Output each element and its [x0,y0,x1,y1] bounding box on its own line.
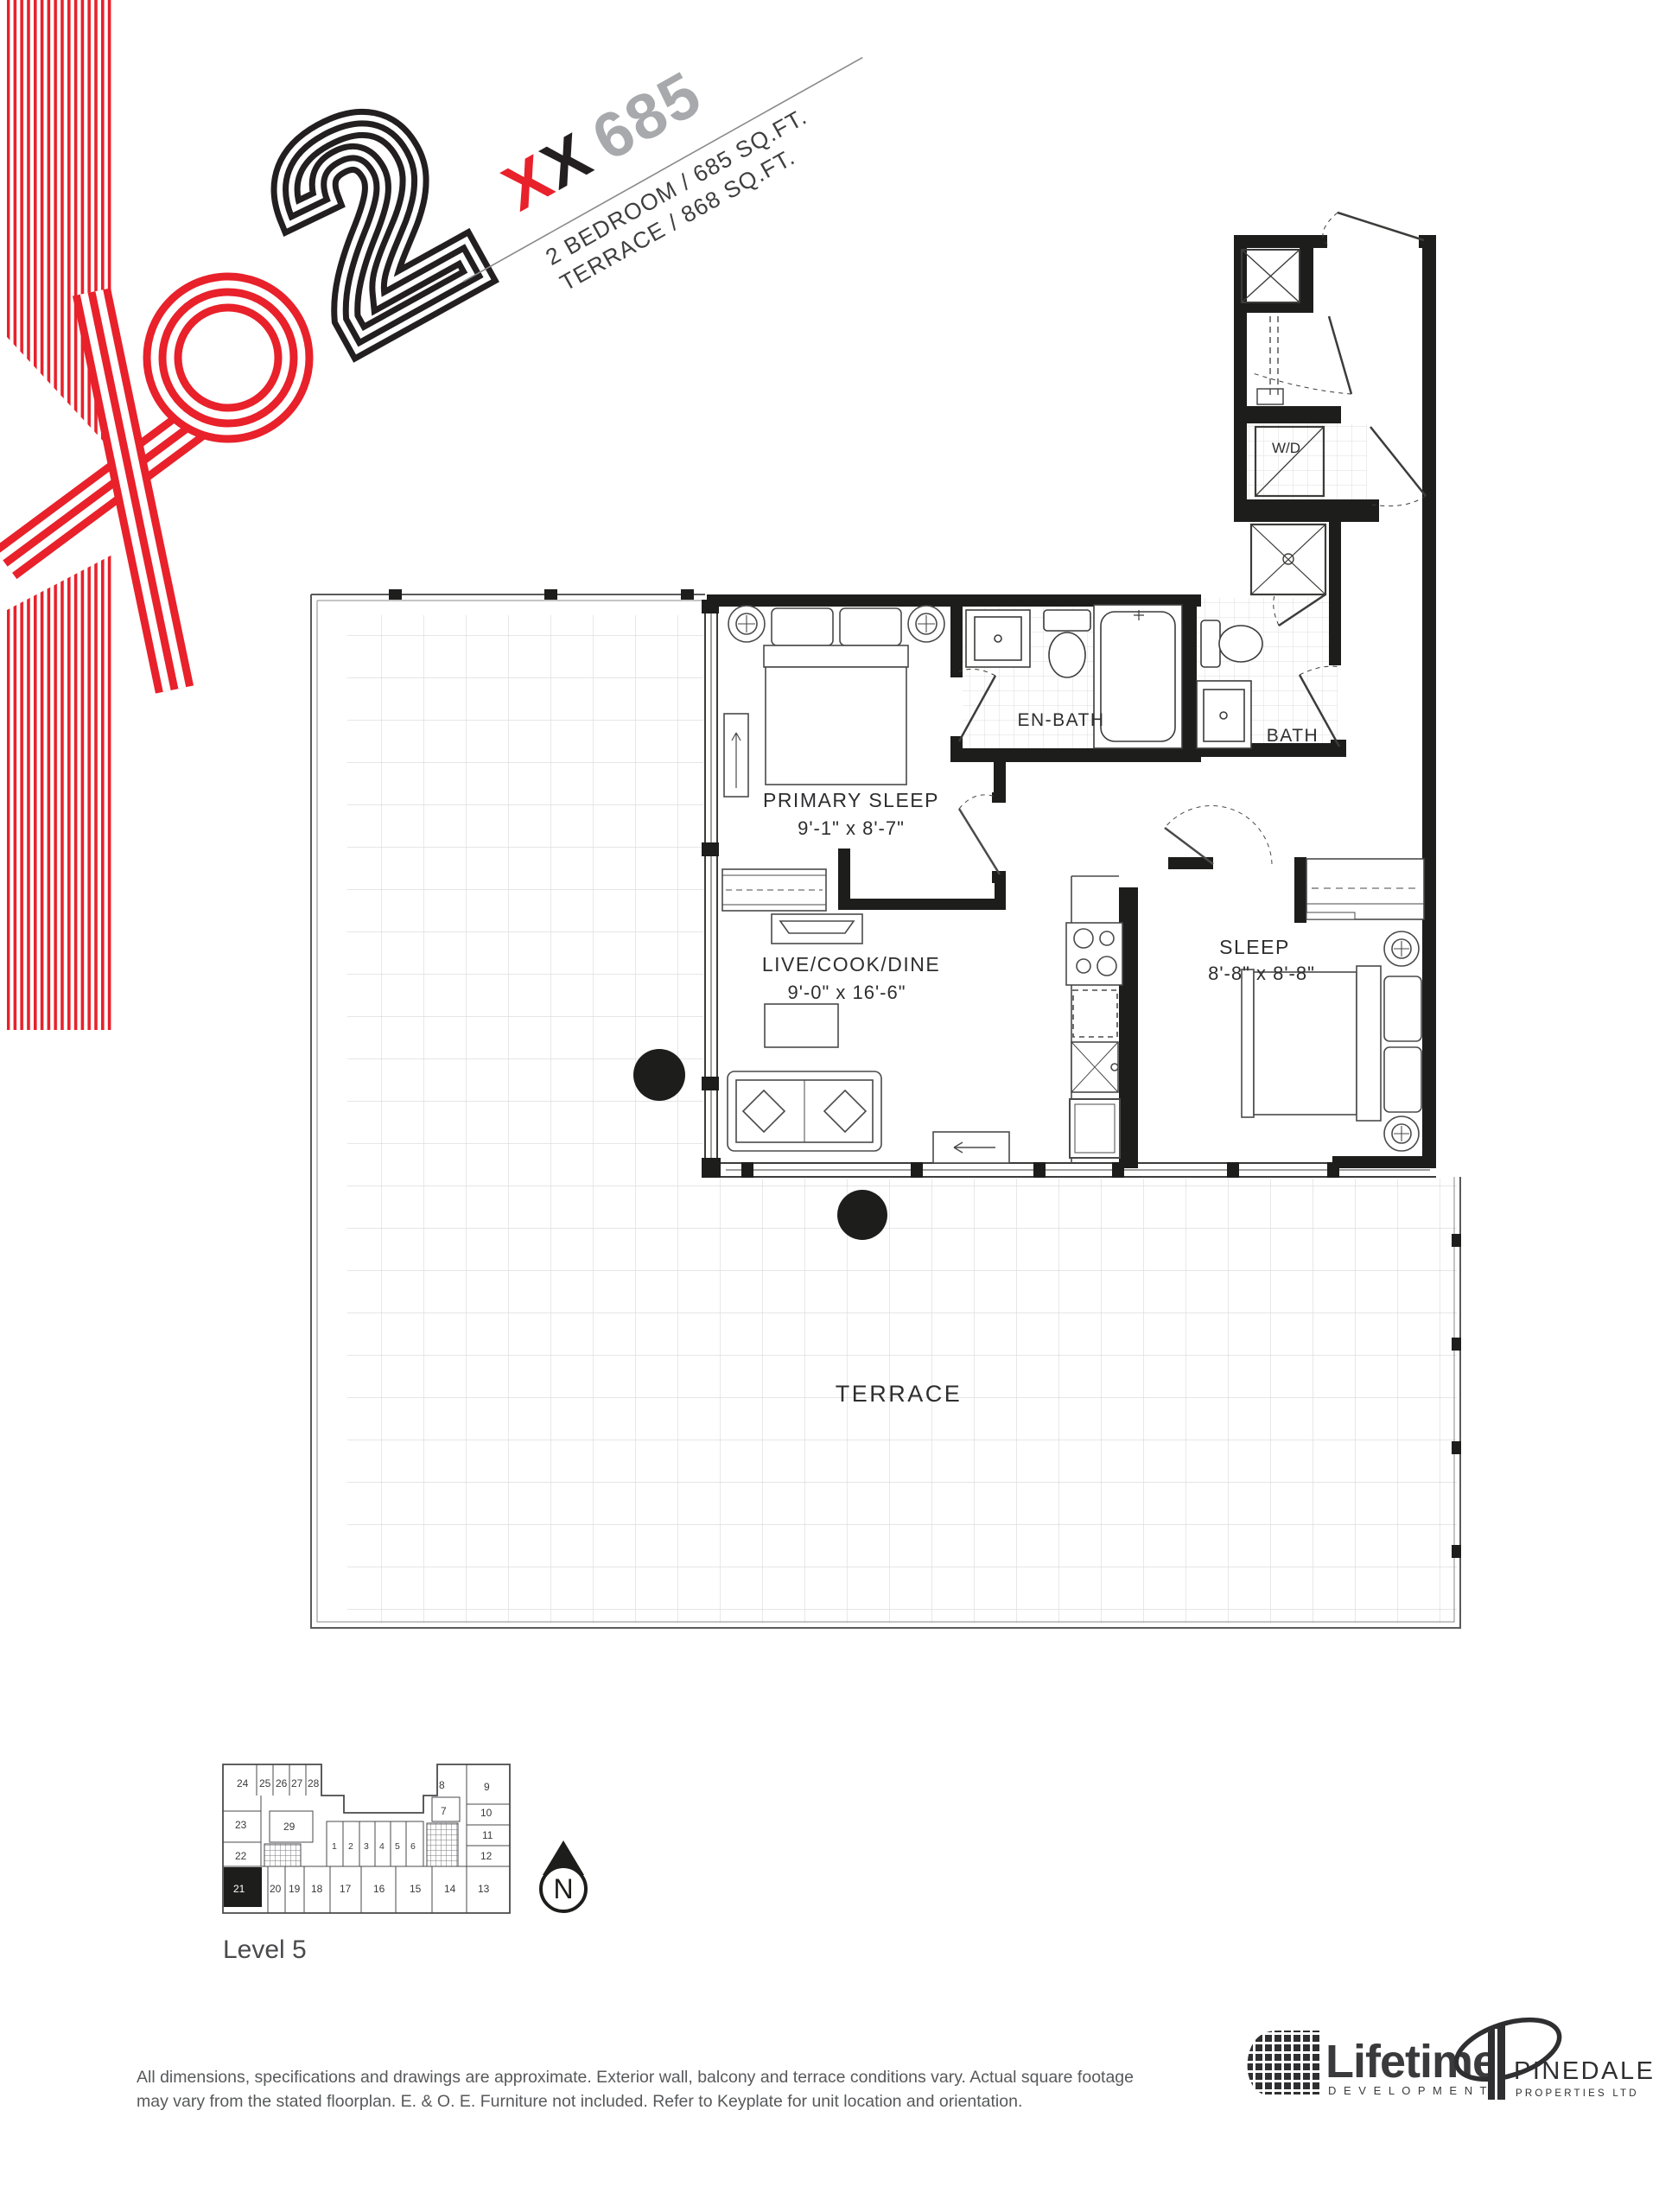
coffee-table [765,1004,838,1047]
pinedale-tower-slit [1495,2029,1497,2100]
floor-plan: TERRACE [311,213,1461,1628]
structural-column [837,1190,887,1240]
kitchen [1066,876,1122,1163]
keyplate-unit-12: 12 [480,1850,493,1862]
enbath-tub [1094,605,1182,748]
floorplan-page: 2 2 2 XX685 2 BEDROOM / 685 SQ.FT. TERRA… [0,0,1659,2212]
fridge [1070,1099,1120,1158]
disclaimer-line1: All dimensions, specifications and drawi… [137,2068,1134,2087]
primary-door-arc [959,795,995,809]
keyplate-unit-3: 3 [364,1841,369,1852]
keyplate-unit-7: 7 [441,1805,447,1817]
keyplate-unit-1: 1 [332,1841,337,1852]
enbath-vanity [966,610,1030,667]
sofa [728,1071,881,1151]
keyplate-unit-19: 19 [289,1883,301,1895]
keyplate-level-label: Level 5 [223,1935,307,1964]
pinedale-sub: PROPERTIES LTD [1516,2088,1639,2099]
keyplate-unit-2: 2 [348,1841,353,1852]
keyplate: 1 2 3 4 5 6 7 8 9 10 11 12 13 14 15 16 1… [223,1764,586,1964]
primary-nightstand [728,606,765,642]
room-dims-primary: 9'-1" x 8'-7" [798,817,905,839]
room-label-primary: PRIMARY SLEEP [763,789,939,811]
terrace-paving-left [347,615,703,1623]
keyplate-unit-29: 29 [283,1821,296,1833]
keyplate-unit-8: 8 [439,1779,445,1791]
kitchen-sink [1071,1042,1118,1092]
structural-column [633,1049,685,1101]
live-cook-dine: LIVE/COOK/DINE 9'-0" x 16'-6" [728,876,1122,1163]
keyplate-unit-18: 18 [311,1883,323,1895]
disclaimer-line2: may vary from the stated floorplan. E. &… [137,2092,1022,2111]
keyplate-unit-6: 6 [410,1841,416,1852]
north-arrow-icon: N [541,1840,586,1911]
tv-console [772,914,862,944]
keyplate-unit-9: 9 [484,1781,490,1793]
keyplate-unit-11: 11 [482,1829,493,1841]
keyplate-unit-14: 14 [444,1883,456,1895]
keyplate-unit-4: 4 [379,1841,385,1852]
lifetime-sub: D E V E L O P M E N T S [1328,2084,1503,2097]
keyplate-unit-20: 20 [270,1883,282,1895]
keyplate-unit-25: 25 [259,1777,271,1789]
wd-floor [1247,423,1367,499]
keyplate-unit-23: 23 [235,1819,247,1831]
primary-dresser [724,714,748,797]
disclaimer: All dimensions, specifications and drawi… [137,2068,1134,2111]
primary-closet [722,869,826,911]
sleep-closet [1306,859,1424,919]
keyplate-unit-22: 22 [235,1850,247,1862]
entry-console [933,1132,1009,1163]
keyplate-unit-17: 17 [340,1883,352,1895]
room-dims-sleep: 8'-8" x 8'-8" [1208,963,1315,984]
entry-door-leaf [1338,213,1424,240]
terrace-paving-bottom [703,1179,1457,1623]
room-label-terrace: TERRACE [836,1381,963,1407]
floorplan-canvas: 2 2 2 XX685 2 BEDROOM / 685 SQ.FT. TERRA… [0,0,1659,2212]
keyplate-unit-28: 28 [308,1777,320,1789]
keyplate-unit-5: 5 [395,1841,400,1852]
logo-letter-o [162,292,294,423]
pinedale-name: PINEDALE [1514,2057,1655,2085]
sleep-door-arc [1165,805,1272,864]
keyplate-unit-24: 24 [237,1777,249,1789]
label-wd: W/D [1272,440,1300,456]
lifetime-dotmatrix-icon [1248,2031,1320,2094]
keyplate-unit-13: 13 [478,1883,490,1895]
primary-nightstand [908,606,944,642]
sleep-nightstand [1384,1116,1419,1151]
keyplate-unit-16: 16 [373,1883,385,1895]
logo-stripe-block-bottom [7,555,112,1030]
unit-number: 685 [581,57,714,175]
room-label-bath: BATH [1267,726,1319,746]
keyplate-unit-10: 10 [480,1807,493,1819]
sleep-nightstand [1384,931,1419,966]
keyplate-unit-15: 15 [410,1883,422,1895]
dishwasher [1073,990,1117,1037]
room-label-sleep: SLEEP [1219,936,1290,958]
room-label-live: LIVE/COOK/DINE [762,953,940,976]
cooktop [1066,923,1122,985]
primary-door-leaf [959,809,1000,874]
primary-bed [764,608,908,785]
north-label: N [553,1873,573,1904]
bath-vanity [1197,681,1251,748]
room-label-enbath: EN-BATH [1017,710,1104,730]
keyplate-unit-21: 21 [233,1883,245,1895]
keyplate-unit-27: 27 [291,1777,303,1789]
lifetime-logo: Lifetime D E V E L O P M E N T S [1248,2031,1503,2097]
room-dims-live: 9'-0" x 16'-6" [787,982,906,1003]
keyplate-unit-26: 26 [276,1777,288,1789]
entry-closet [1253,316,1351,404]
sleep-bed [1242,966,1421,1121]
shaft [1242,250,1300,302]
